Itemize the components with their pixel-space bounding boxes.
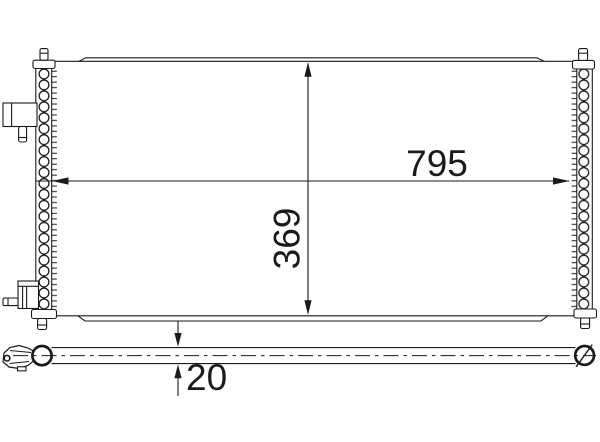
fitting-hole-icon xyxy=(4,355,10,361)
left-header-tubes xyxy=(36,69,57,310)
width-dimension: 795 xyxy=(36,143,570,185)
right-fin-ticks xyxy=(572,69,577,310)
depth-dimension-label: 20 xyxy=(186,357,227,398)
mounting-pin-icon xyxy=(579,49,588,61)
fitting-block xyxy=(18,281,39,309)
mounting-pin-icon xyxy=(40,49,48,61)
arrowhead-down-icon xyxy=(304,300,311,315)
left-fin-ticks xyxy=(52,69,57,310)
fitting-stub xyxy=(19,127,27,143)
right-header-tubes xyxy=(572,69,593,310)
left-tube-column xyxy=(39,69,50,310)
arrowhead-up-icon xyxy=(304,62,311,77)
top-left-bracket xyxy=(33,49,55,69)
height-dimension-label: 369 xyxy=(267,208,308,270)
bracket-cap xyxy=(574,309,597,318)
lower-pipe-fitting xyxy=(3,281,39,309)
bracket-cap xyxy=(573,60,595,69)
depth-dimension: 20 xyxy=(174,321,227,398)
right-tube-column xyxy=(578,69,589,310)
bottom-left-bracket xyxy=(32,310,57,330)
arrowhead-down-icon xyxy=(174,333,181,347)
front-view xyxy=(3,49,597,330)
side-view xyxy=(3,345,596,371)
width-dimension-label: 795 xyxy=(406,143,468,184)
bracket-cap xyxy=(32,310,57,319)
side-left-fitting xyxy=(3,346,34,371)
arrowhead-right-icon xyxy=(553,177,570,184)
bottom-right-bracket xyxy=(574,309,597,329)
bottom-plate-edge xyxy=(57,316,575,321)
fitting-tab xyxy=(18,367,27,371)
mounting-pin-icon xyxy=(38,319,47,330)
fitting-block xyxy=(3,103,37,127)
bracket-cap xyxy=(33,60,55,68)
condenser-dimension-drawing: 795 369 xyxy=(0,0,600,442)
fitting-stub xyxy=(3,298,18,306)
technical-drawing-canvas: 795 369 xyxy=(0,0,600,442)
mounting-pin-icon xyxy=(581,318,590,329)
height-dimension: 369 xyxy=(267,62,312,314)
top-plate-edge xyxy=(55,58,573,62)
upper-pipe-fitting xyxy=(3,103,37,142)
top-right-bracket xyxy=(573,49,595,69)
arrowhead-up-icon xyxy=(174,364,181,378)
